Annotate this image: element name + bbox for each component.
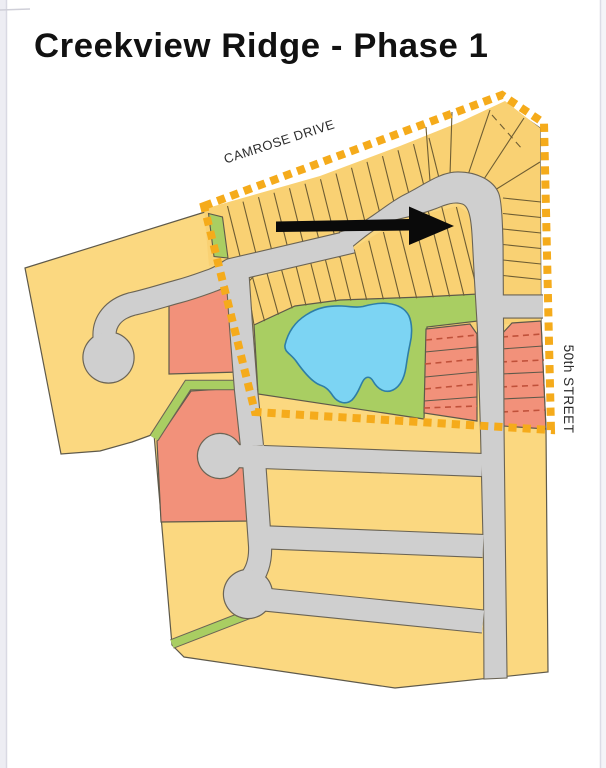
svg-text:Creekview Ridge - Phase 1: Creekview Ridge - Phase 1 — [34, 27, 489, 65]
svg-text:50th STREET: 50th STREET — [561, 345, 576, 434]
